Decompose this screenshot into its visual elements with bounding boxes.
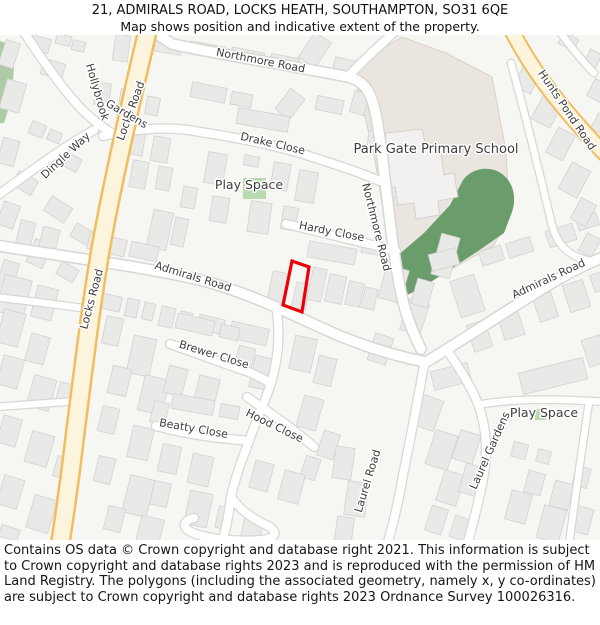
map-label-play-space: Play Space — [510, 405, 578, 420]
map-building — [334, 516, 354, 540]
map-building — [112, 35, 130, 62]
copyright-footer: Contains OS data © Crown copyright and d… — [0, 540, 600, 605]
map-building — [510, 441, 528, 459]
map-label-play-space: Play Space — [215, 177, 283, 192]
map-image: Northmore RoadDrake ClosePlay SpacePark … — [0, 35, 600, 540]
map-canvas: Northmore RoadDrake ClosePlay SpacePark … — [0, 35, 600, 540]
map-building — [219, 403, 240, 419]
map-building — [332, 446, 355, 480]
map-building — [247, 201, 272, 235]
map-title-header: 21, ADMIRALS ROAD, LOCKS HEATH, SOUTHAMP… — [0, 0, 600, 35]
property-address-title: 21, ADMIRALS ROAD, LOCKS HEATH, SOUTHAMP… — [0, 3, 600, 19]
map-building — [536, 449, 552, 465]
map-building — [243, 155, 260, 167]
map-building — [145, 96, 161, 116]
map-subtitle: Map shows position and indicative extent… — [0, 19, 600, 34]
map-building — [209, 196, 230, 223]
map-label-park-gate-primary-school: Park Gate Primary School — [353, 142, 518, 157]
